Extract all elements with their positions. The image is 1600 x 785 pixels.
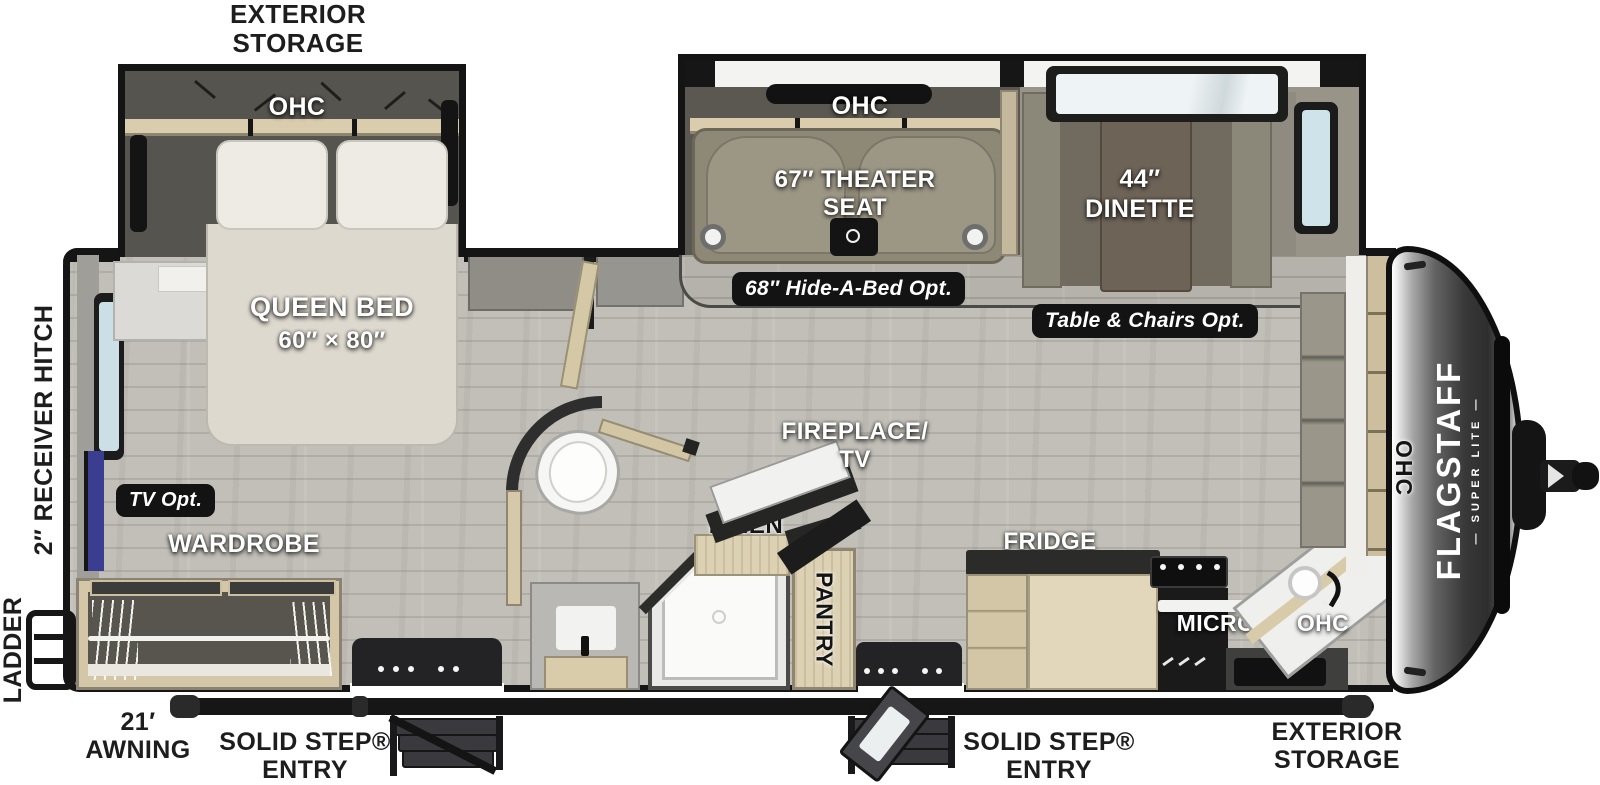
exterior-storage-front-label: EXTERIORSTORAGE [1242,718,1432,774]
kitchen-wall-cabinets [1300,292,1346,548]
hide-a-bed-badge: 68″ Hide-A-Bed Opt. [732,272,965,306]
bedroom-cabinet [158,266,208,292]
bedroom-tv [84,451,104,571]
closet-rod [88,636,330,641]
closet [468,257,584,311]
wardrobe-floor [88,664,330,676]
front-wall-band [1346,256,1368,576]
awning-end-cap [1342,695,1372,718]
kitchen-ohc-label: OHC [1282,610,1364,637]
exterior-storage-rear-label: EXTERIORSTORAGE [208,0,388,58]
kitchen-drawers [966,574,1028,690]
slide-roof-trim [685,61,715,87]
slide-roof-trim [1320,61,1359,87]
linen-closet [694,534,790,576]
shower-drain [712,610,726,624]
wardrobe-label: WARDROBE [163,530,325,560]
brand-logo: FLAGSTAFF — SUPER LITE — [1430,320,1494,620]
ladder [26,610,76,690]
slide-divider [1000,90,1018,256]
pillow [336,140,448,230]
vanity-faucet [581,636,589,656]
cup-holder [962,224,988,250]
entry-steps [390,714,512,780]
dinette-window-glass [1302,110,1330,226]
fireplace-label: FIREPLACE/TV [770,418,940,475]
receiver-hitch-label: 2″ RECEIVER HITCH [30,305,58,556]
awning-joint [352,696,368,717]
ladder-label: LADDER [0,597,27,704]
hitch-coupler [1572,462,1599,490]
awning-label: 21′AWNING [68,708,208,764]
console-icon [846,229,860,243]
pillow [216,140,328,230]
range-cooktop [1150,556,1228,588]
theater-label: 67″ THEATERSEAT [768,166,942,223]
entry-mat [856,642,962,686]
solid-step-entry2-label: SOLID STEP®ENTRY [960,728,1138,784]
closet [596,257,684,307]
bath-wall [506,490,522,606]
pantry: PANTRY [792,548,856,690]
bedroom-slide-window-left [130,135,147,232]
dinette-label: 44″DINETTE [1060,165,1220,224]
table-chairs-badge: Table & Chairs Opt. [1032,304,1258,338]
bedroom-ohc-label: OHC [257,93,337,123]
floorplan: OHC QUEEN BED60″ × 80″ LINEN PANTRY FIRE… [0,0,1600,785]
brand-name: FLAGSTAFF [1430,320,1468,620]
queen-bed-label: QUEEN BED60″ × 80″ [230,292,434,356]
slide-roof-trim [1000,61,1024,87]
wardrobe-glass-top [228,580,336,596]
pantry-label: PANTRY [811,572,838,667]
front-ohc-label: OHC [1390,440,1417,497]
entry-mat [352,638,502,686]
brand-sub: — SUPER LITE — [1470,320,1482,620]
vanity-step [544,656,628,690]
solid-step-entry1-label: SOLID STEP®ENTRY [216,728,394,784]
front-cap-window [1494,336,1510,614]
fridge-counter-top [966,550,1160,576]
tv-opt-badge: TV Opt. [116,484,215,517]
dinette-skylight-glass [1056,74,1278,114]
wardrobe-glass-top [90,580,222,596]
cup-holder [700,224,726,250]
fridge-door [1028,574,1158,690]
